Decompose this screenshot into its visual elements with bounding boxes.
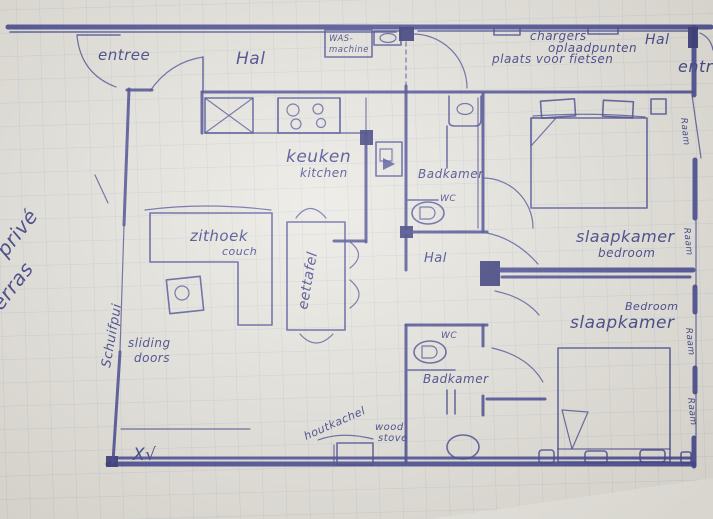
floor-plan-photo: entree Hal WAS- machine chargers oplaadp…	[0, 0, 713, 519]
was-machine-label2: machine	[329, 45, 369, 55]
bedroom2-en-label: Bedroom	[625, 300, 679, 313]
wood-label: wood	[375, 422, 404, 433]
hal-middle-label: Hal	[424, 251, 447, 266]
wc-lower-label: WC	[441, 331, 457, 341]
was-machine-label1: WAS-	[329, 34, 353, 44]
floor-plan-drawing: entree Hal WAS- machine chargers oplaadp…	[0, 0, 713, 519]
zithoek-label: zithoek	[189, 227, 249, 245]
entree-right-label: entree	[678, 57, 713, 76]
keuken-label: keuken	[286, 147, 351, 167]
sliding-label: sliding	[128, 336, 171, 350]
check-annotation: X√	[132, 445, 156, 465]
wc-upper-label: WC	[440, 194, 456, 204]
bedroom1-label: bedroom	[598, 246, 655, 260]
bedroom2-nl-label: slaapkamer	[570, 313, 675, 333]
bikes-label: plaats voor fietsen	[491, 52, 613, 66]
door-post	[480, 261, 500, 286]
entree-left-label: entree	[98, 46, 150, 64]
stove-label: stove	[378, 433, 408, 444]
badkamer-upper-label: Badkamer	[418, 167, 484, 181]
couch-label: couch	[222, 245, 257, 258]
hal-top-right-label: Hal	[645, 32, 670, 48]
slaapkamer1-label: slaapkamer	[576, 227, 676, 246]
badkamer-lower-label: Badkamer	[423, 372, 489, 386]
hal-top-left-label: Hal	[236, 49, 265, 69]
doors-label: doors	[134, 351, 170, 365]
kitchen-label: kitchen	[300, 166, 348, 180]
